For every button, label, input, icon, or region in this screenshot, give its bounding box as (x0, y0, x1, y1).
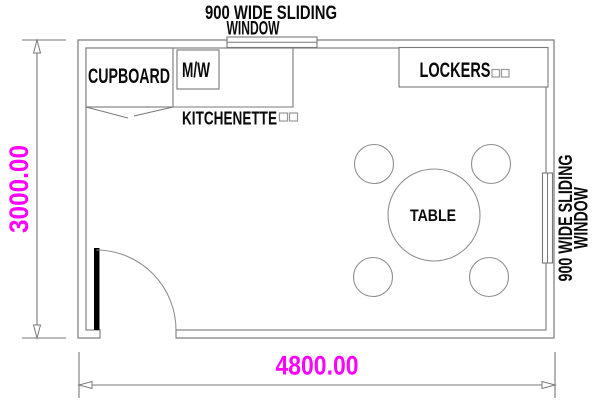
kitchenette-label: KITCHENETTE (182, 108, 277, 129)
floor-plan: 3000.00 4800.00 CUPBOARD M/W KITCHENETTE… (0, 0, 600, 409)
door-opening-mask (100, 326, 176, 342)
lockers-label: LOCKERS (420, 59, 491, 82)
height-dimension-arrow-down (34, 325, 41, 338)
microwave-label: M/W (182, 59, 210, 82)
width-dimension-arrow-right (542, 382, 555, 389)
height-dimension-label: 3000.00 (4, 145, 34, 233)
height-dimension-arrow-up (34, 40, 41, 53)
chair-circle (354, 258, 393, 297)
width-dimension-arrow-left (79, 382, 92, 389)
cupboard-label: CUPBOARD (88, 65, 170, 88)
door-leaf (94, 248, 100, 330)
floor-plan-page: 3000.00 4800.00 CUPBOARD M/W KITCHENETTE… (0, 0, 600, 409)
top-window-label-line2: WINDOW (227, 19, 280, 40)
width-dimension-label: 4800.00 (276, 351, 359, 381)
chair-circle (470, 258, 509, 297)
chair-circle (472, 145, 511, 184)
table-label: TABLE (410, 206, 456, 225)
right-window-label-line2: WINDOW (572, 187, 593, 249)
chair-circle (355, 145, 394, 184)
